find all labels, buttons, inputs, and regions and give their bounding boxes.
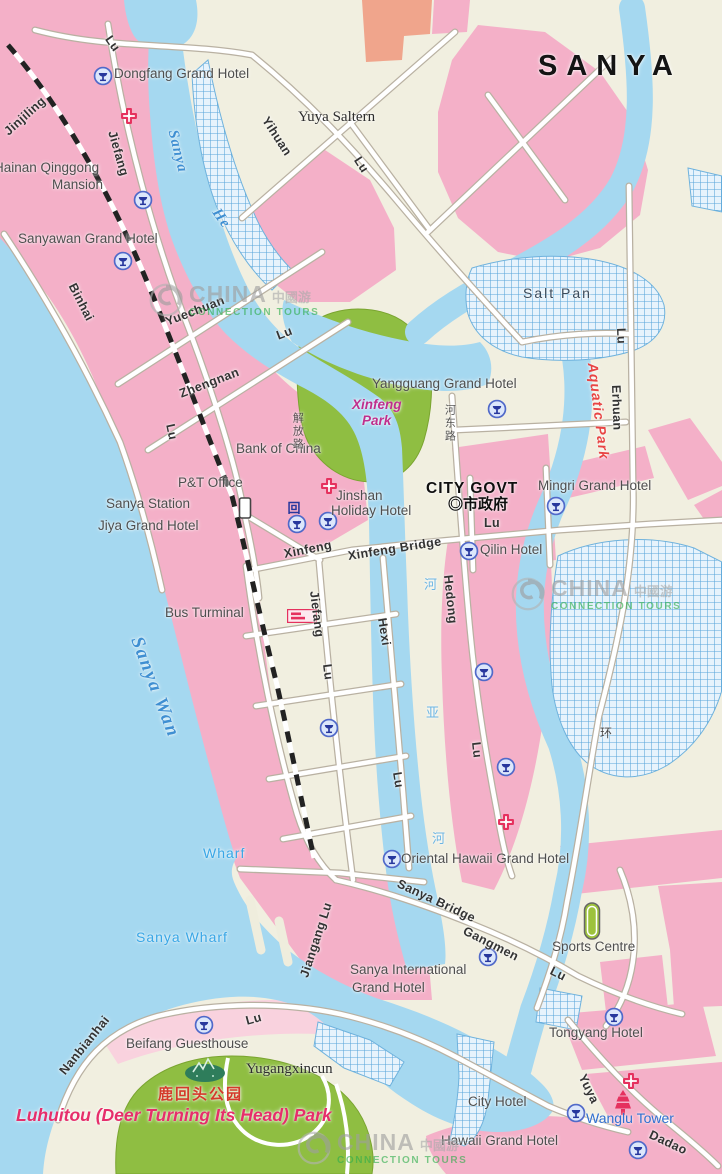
sanya-city-map: 回 SANYADongfang Grand HotelYuya SalternJ… [0, 0, 722, 1174]
map-canvas [0, 0, 722, 1174]
